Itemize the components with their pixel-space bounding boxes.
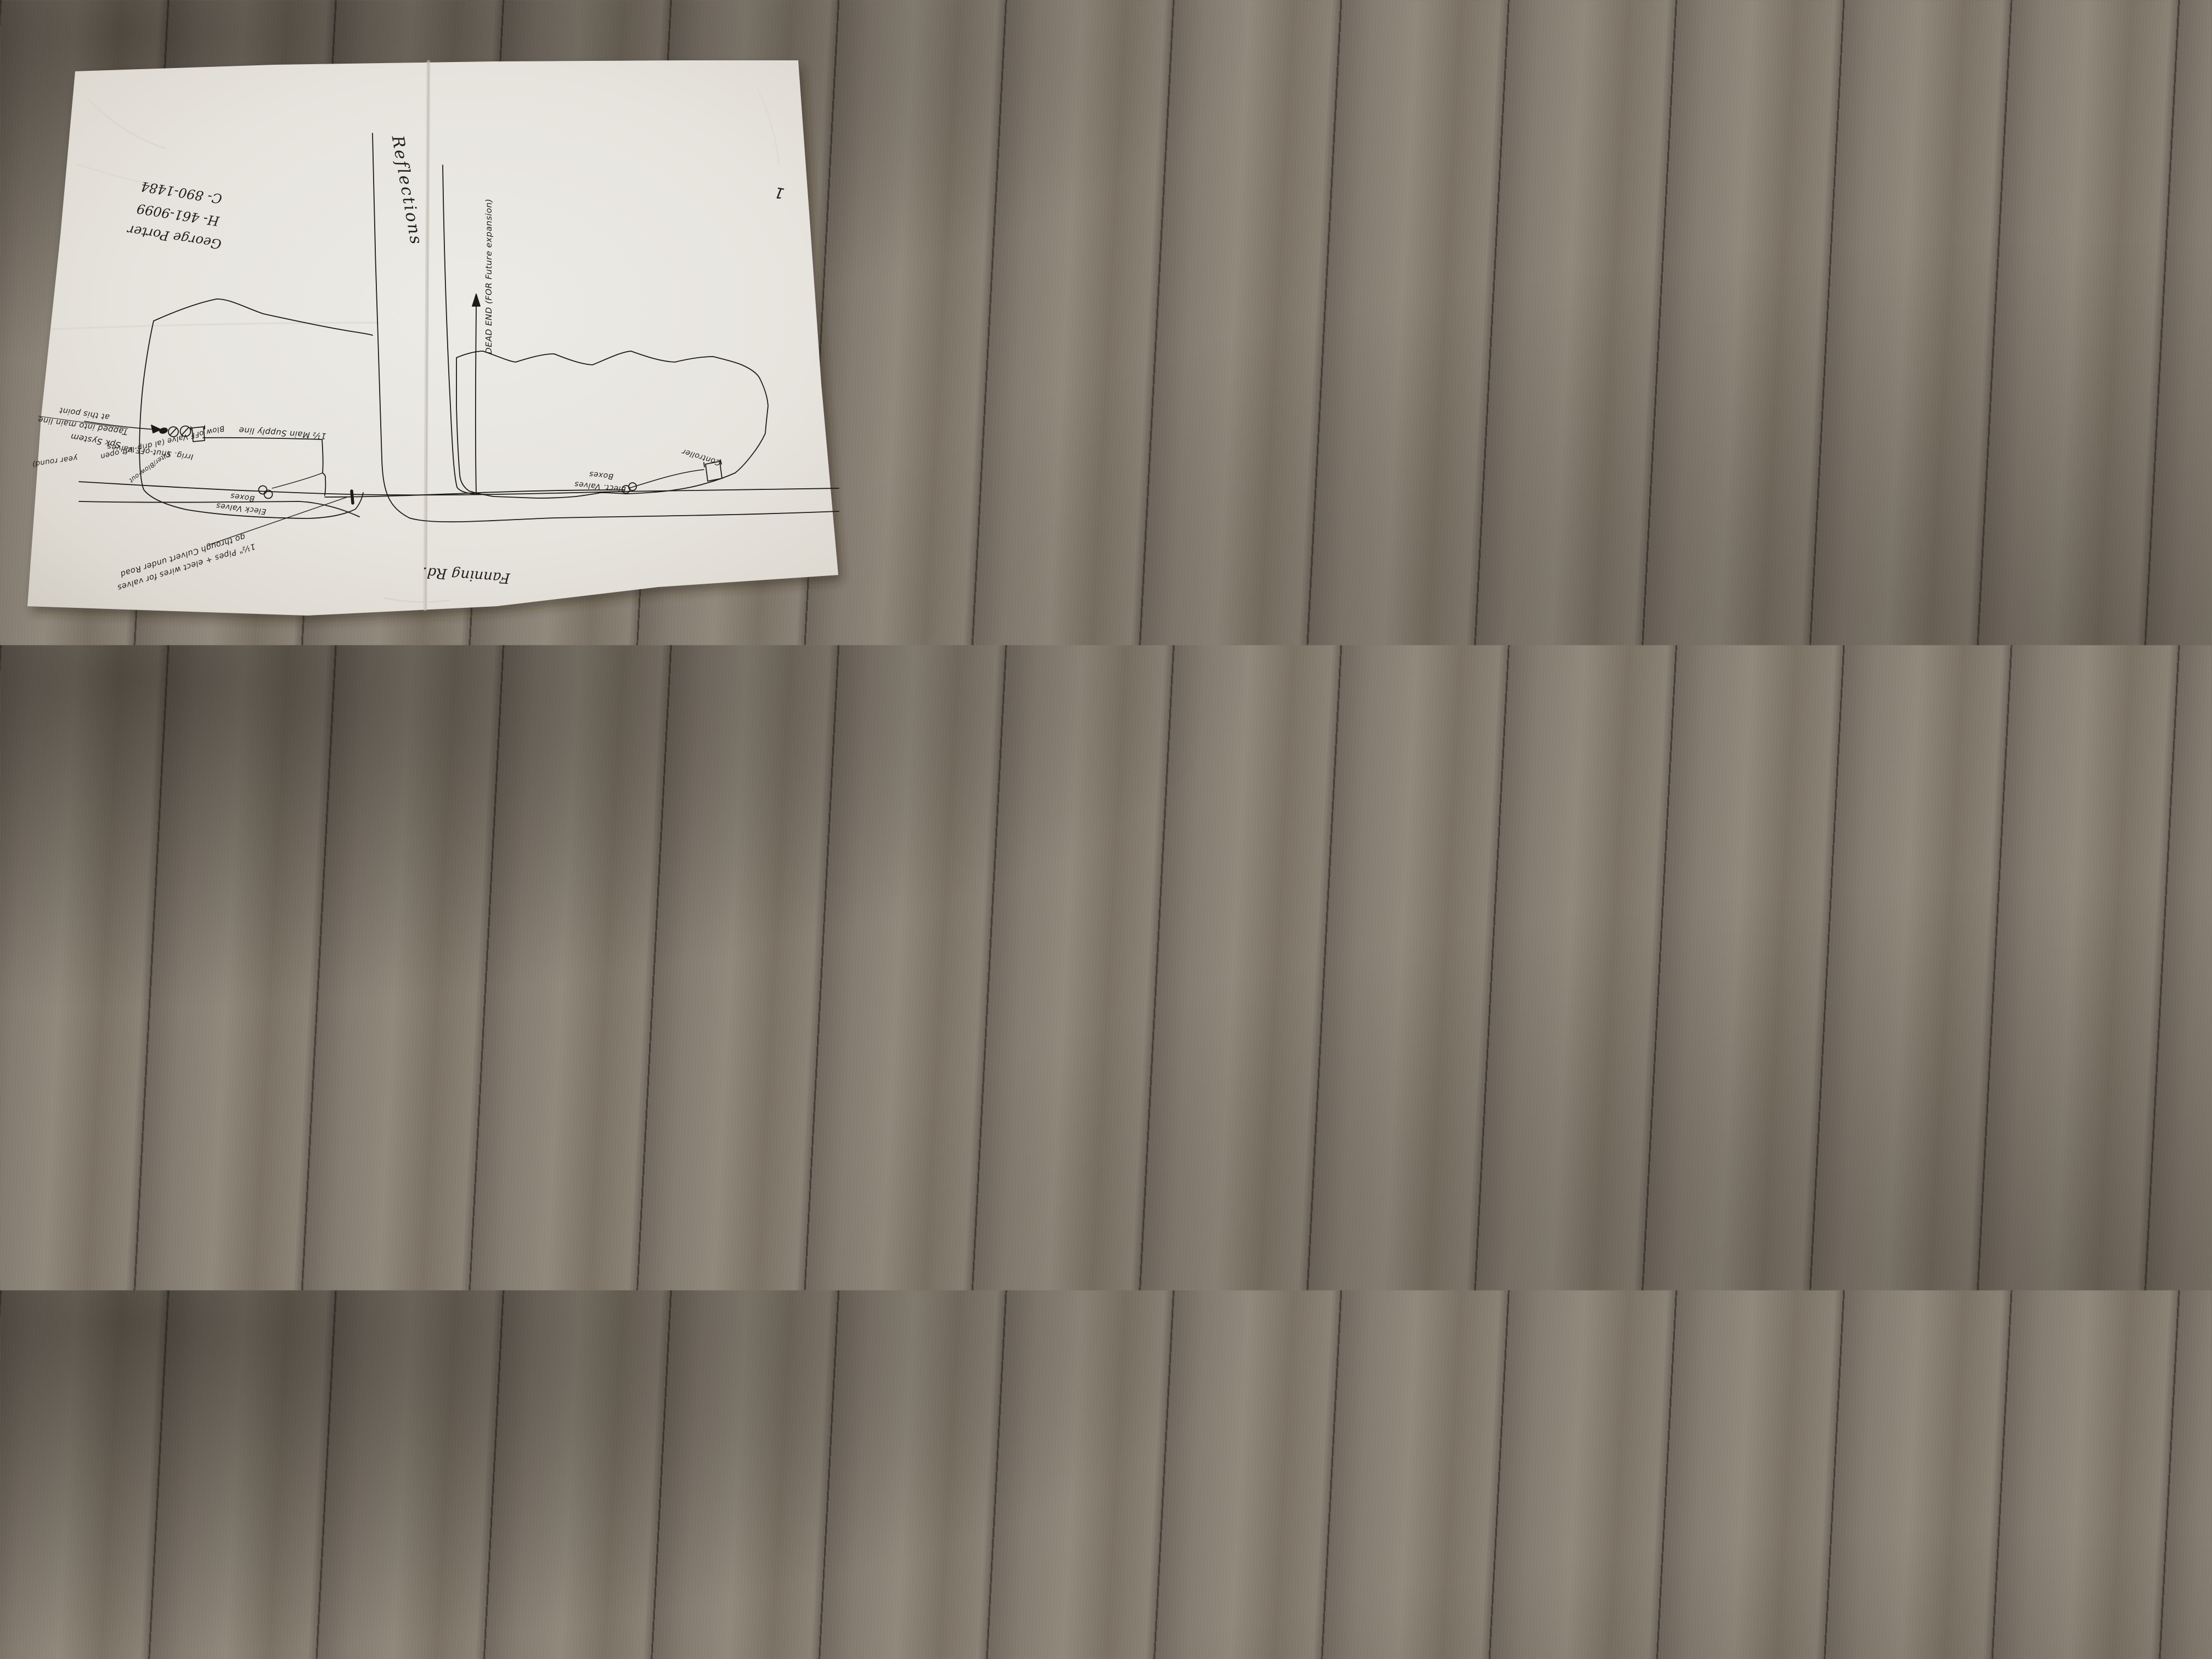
dead-end-label: DEAD END (FOR Future expansion) bbox=[483, 199, 495, 354]
sketch-drawing bbox=[0, 0, 860, 645]
photo-of-hand-drawn-site-sketch: 1 George Porter H- 461-9099 C- 890-1484 … bbox=[0, 0, 860, 645]
paper-sheet bbox=[27, 60, 838, 616]
dead-end-line bbox=[476, 306, 476, 494]
culvert-crossing-mark bbox=[352, 491, 353, 503]
